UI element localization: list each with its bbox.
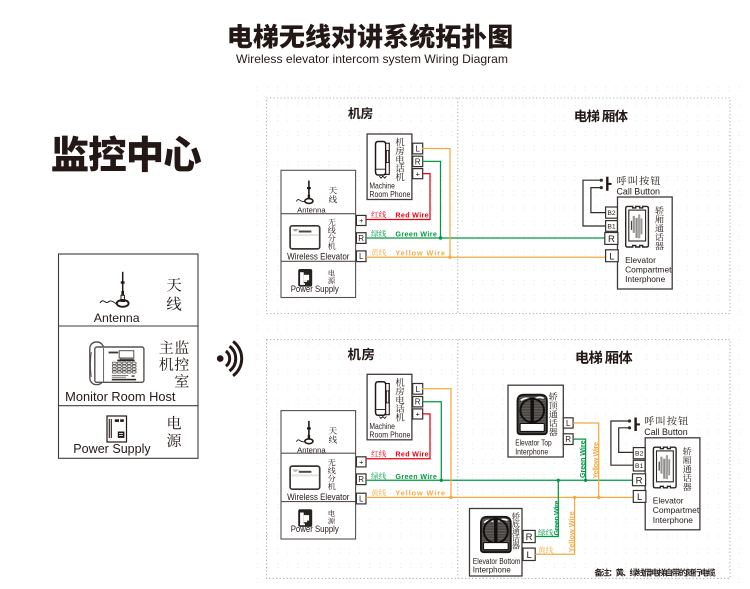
svg-text:Interphone: Interphone (653, 515, 694, 525)
svg-text:R: R (636, 475, 643, 486)
svg-text:Antenna: Antenna (94, 311, 140, 325)
svg-text:L: L (566, 419, 571, 428)
svg-text:+: + (359, 458, 363, 467)
svg-text:R: R (358, 475, 364, 484)
svg-text:Interphone: Interphone (625, 274, 666, 284)
svg-text:B2: B2 (635, 451, 644, 458)
svg-text:Green Wire: Green Wire (395, 472, 437, 481)
svg-text:B1: B1 (607, 224, 616, 231)
svg-text:B2: B2 (607, 210, 616, 217)
svg-text:Green Wire: Green Wire (395, 230, 437, 239)
svg-text:Power Supply: Power Supply (291, 524, 340, 534)
svg-text:+: + (416, 410, 420, 419)
svg-text:R: R (608, 234, 615, 245)
svg-text:Call Button: Call Button (617, 187, 661, 197)
svg-text:B1: B1 (635, 463, 644, 470)
svg-text:L: L (359, 495, 364, 504)
svg-text:+: + (416, 169, 420, 178)
svg-text:Green Wire: Green Wire (552, 501, 561, 536)
svg-text:Antenna: Antenna (297, 446, 326, 455)
svg-text:L: L (637, 492, 642, 503)
svg-text:Power Supply: Power Supply (291, 284, 340, 294)
svg-text:Elevator Top: Elevator Top (515, 439, 552, 448)
svg-text:Interphone: Interphone (515, 448, 548, 457)
svg-text:Compartmet: Compartmet (653, 505, 700, 515)
svg-text:Monitor Room Host: Monitor Room Host (65, 390, 176, 404)
svg-text:Room Phone: Room Phone (369, 430, 410, 439)
svg-text:Yellow Wire: Yellow Wire (395, 248, 445, 257)
svg-text:Antenna: Antenna (297, 205, 326, 214)
svg-text:Wireless Elevator: Wireless Elevator (287, 492, 349, 502)
svg-text:Interphone: Interphone (473, 565, 512, 574)
svg-text:L: L (526, 550, 531, 561)
svg-text:Wireless elevator intercom sys: Wireless elevator intercom system Wiring… (236, 52, 508, 66)
svg-text:Call Button: Call Button (644, 427, 688, 437)
svg-text:Yellow Wire: Yellow Wire (567, 511, 576, 552)
svg-text:Yellow Wire: Yellow Wire (395, 489, 445, 498)
svg-text:+: + (359, 216, 363, 225)
svg-text:R: R (415, 157, 421, 166)
svg-text:Elevator: Elevator (625, 255, 656, 265)
svg-text:Room Phone: Room Phone (369, 190, 410, 199)
svg-text:Wireless Elevator: Wireless Elevator (287, 252, 349, 262)
svg-text:Yellow Wire: Yellow Wire (591, 442, 600, 479)
svg-text:L: L (359, 252, 364, 261)
svg-text:Elevator: Elevator (653, 496, 684, 506)
svg-text:L: L (609, 251, 614, 262)
svg-text:Red Wire: Red Wire (395, 211, 428, 220)
svg-text:L: L (415, 385, 420, 394)
svg-text:Green Wire: Green Wire (578, 440, 587, 478)
svg-text:R: R (358, 234, 364, 243)
svg-text:R: R (565, 435, 571, 444)
svg-text:R: R (526, 532, 533, 543)
svg-text:L: L (415, 145, 420, 154)
svg-text:Power Supply: Power Supply (73, 442, 151, 456)
svg-text:Compartmet: Compartmet (625, 264, 672, 274)
svg-text:R: R (415, 398, 421, 407)
svg-text:Red Wire: Red Wire (395, 450, 428, 459)
